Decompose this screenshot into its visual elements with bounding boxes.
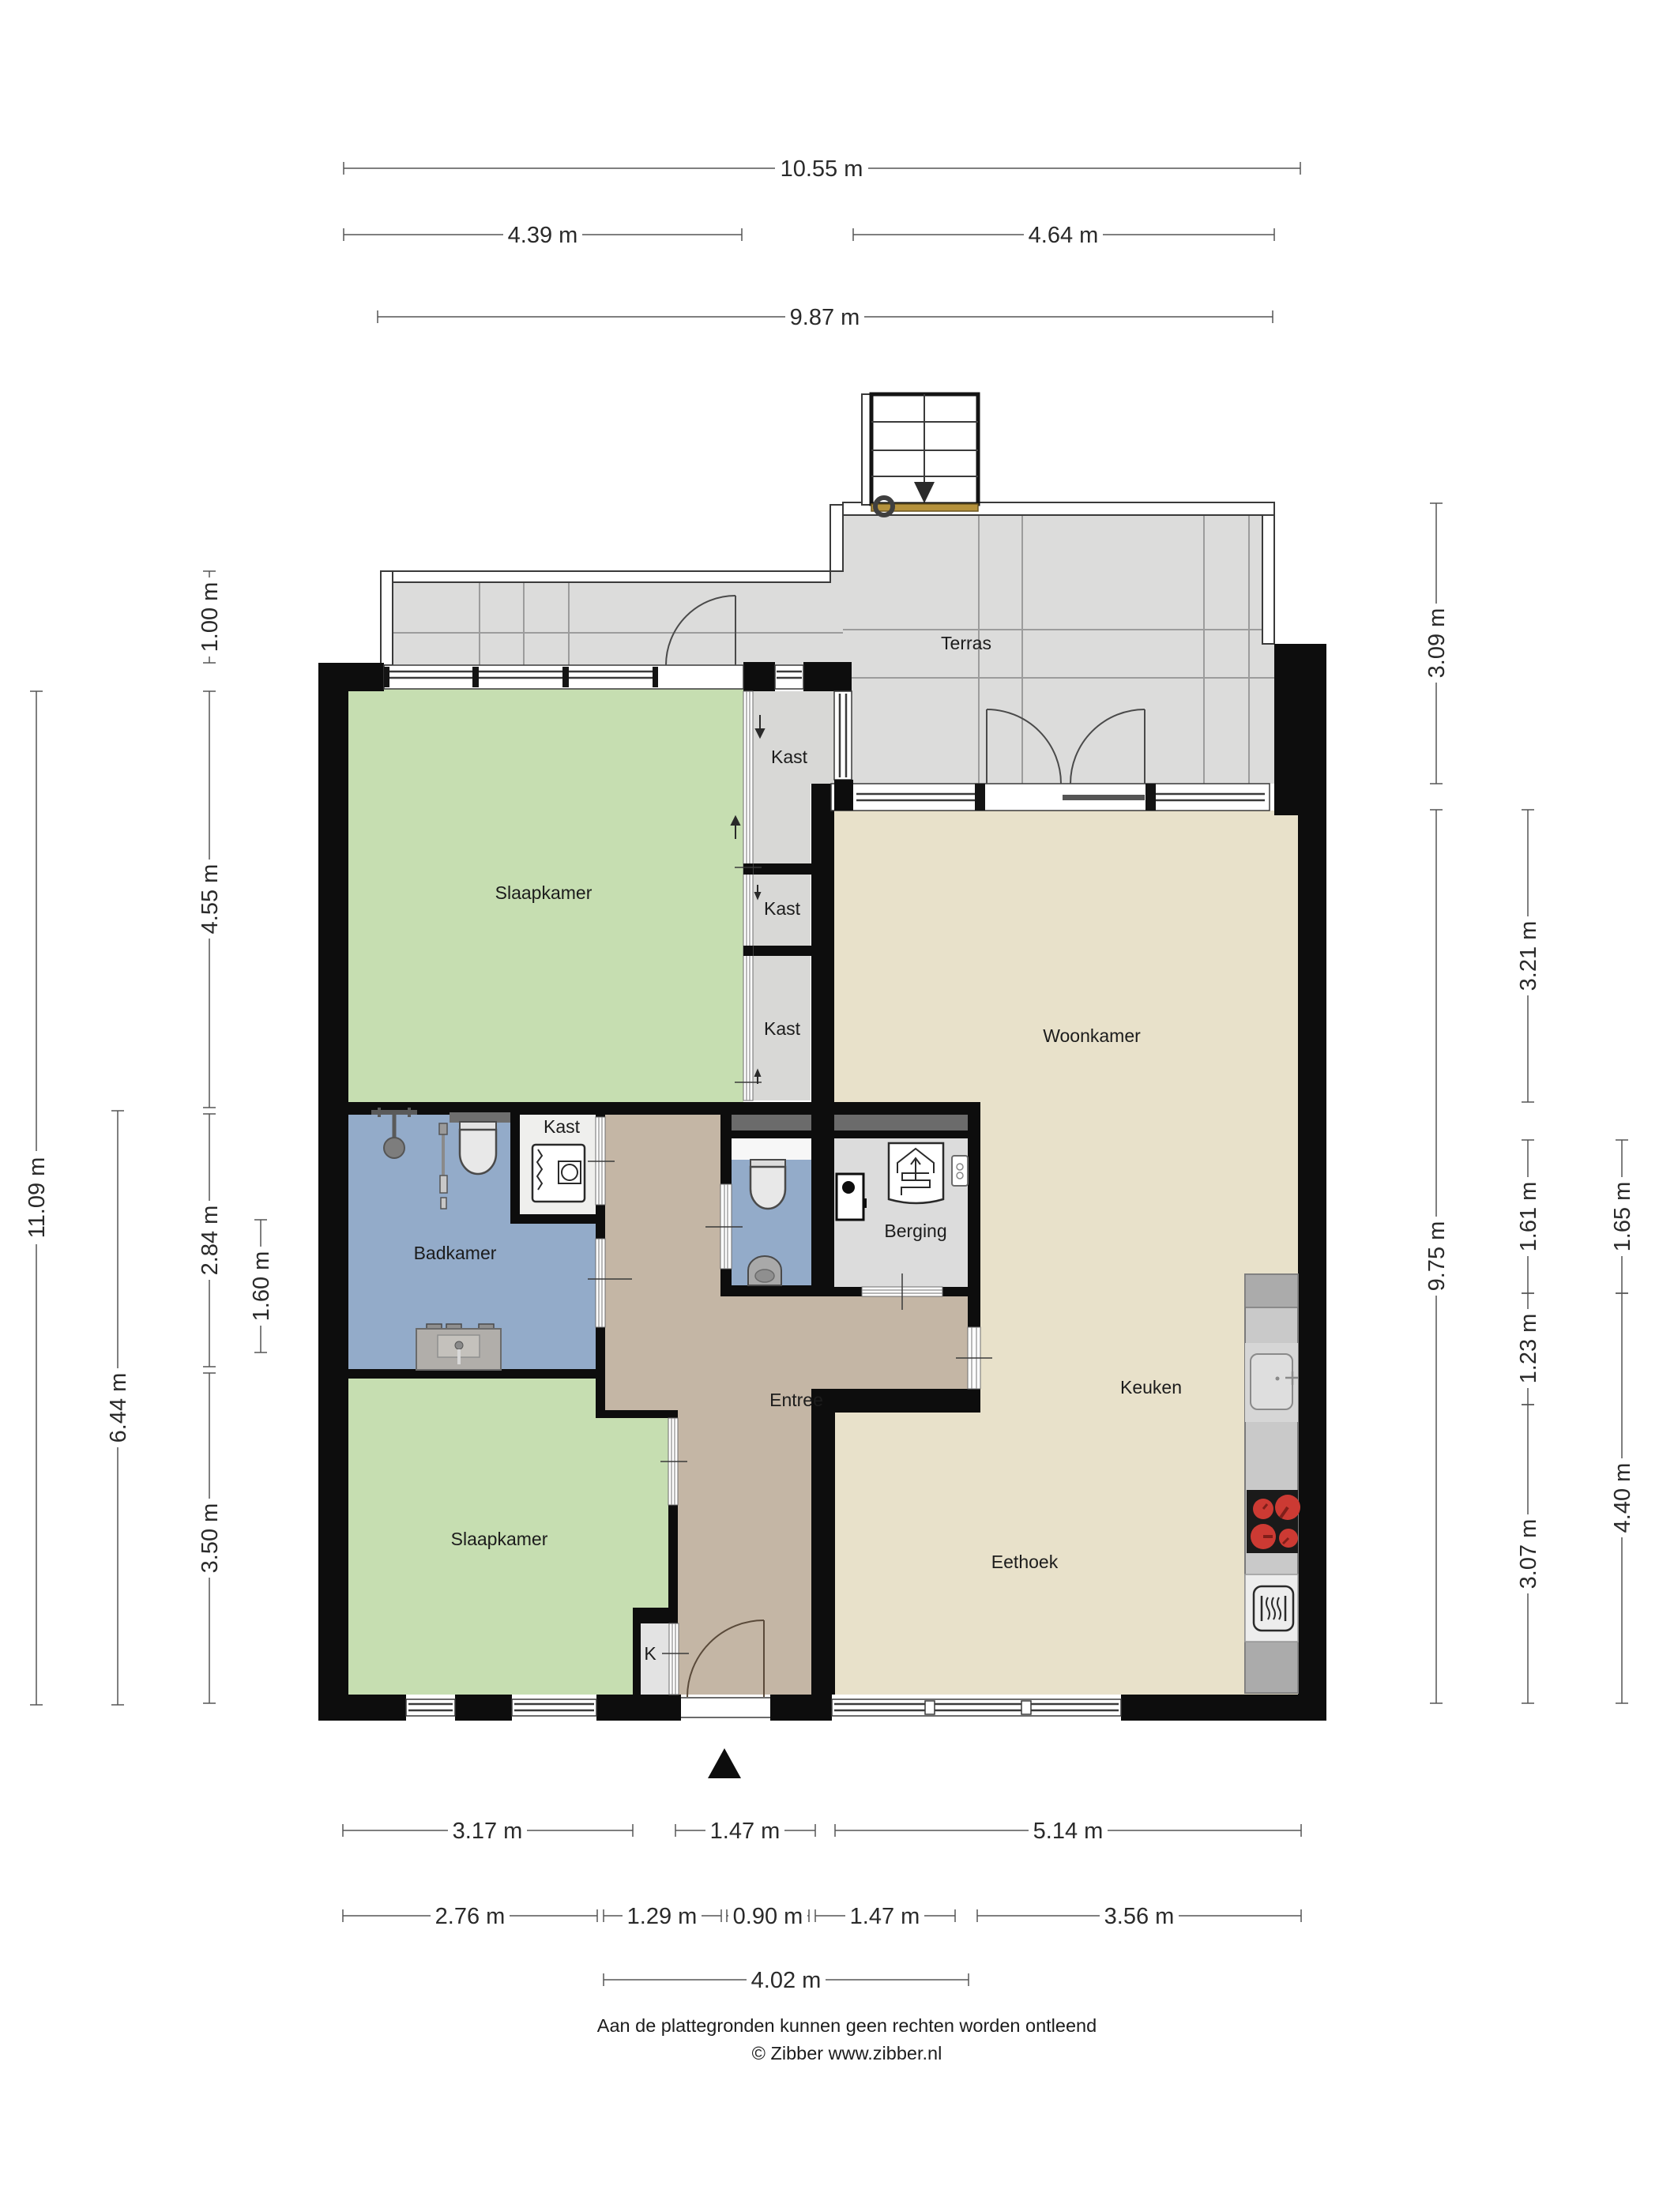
svg-text:5.14 m: 5.14 m bbox=[1033, 1819, 1104, 1844]
svg-text:9.75 m: 9.75 m bbox=[1424, 1221, 1450, 1292]
svg-text:Kast: Kast bbox=[771, 747, 808, 767]
svg-text:3.56 m: 3.56 m bbox=[1104, 1904, 1175, 1929]
svg-text:K: K bbox=[644, 1643, 656, 1664]
svg-text:1.60 m: 1.60 m bbox=[249, 1251, 274, 1322]
svg-text:4.64 m: 4.64 m bbox=[1029, 223, 1099, 248]
svg-text:0.90 m: 0.90 m bbox=[733, 1904, 803, 1929]
svg-text:3.50 m: 3.50 m bbox=[197, 1503, 223, 1574]
svg-text:Terras: Terras bbox=[941, 633, 991, 653]
svg-text:3.07 m: 3.07 m bbox=[1516, 1519, 1541, 1589]
svg-text:Aan de plattegronden kunnen ge: Aan de plattegronden kunnen geen rechten… bbox=[597, 2015, 1097, 2036]
svg-text:Woonkamer: Woonkamer bbox=[1043, 1025, 1141, 1046]
svg-text:1.47 m: 1.47 m bbox=[850, 1904, 920, 1929]
svg-text:Kast: Kast bbox=[764, 898, 801, 919]
svg-text:1.00 m: 1.00 m bbox=[197, 582, 223, 653]
svg-text:Kast: Kast bbox=[544, 1116, 581, 1137]
svg-text:Kast: Kast bbox=[764, 1018, 801, 1039]
svg-text:Slaapkamer: Slaapkamer bbox=[495, 882, 592, 903]
svg-text:3.21 m: 3.21 m bbox=[1516, 921, 1541, 991]
svg-text:Badkamer: Badkamer bbox=[414, 1243, 497, 1263]
svg-text:Slaapkamer: Slaapkamer bbox=[451, 1529, 548, 1549]
svg-text:4.40 m: 4.40 m bbox=[1610, 1463, 1635, 1533]
svg-text:1.65 m: 1.65 m bbox=[1610, 1182, 1635, 1252]
svg-text:1.61 m: 1.61 m bbox=[1516, 1182, 1541, 1252]
svg-text:4.39 m: 4.39 m bbox=[508, 223, 578, 248]
svg-text:Berging: Berging bbox=[884, 1221, 946, 1241]
svg-text:1.29 m: 1.29 m bbox=[627, 1904, 698, 1929]
svg-text:4.02 m: 4.02 m bbox=[751, 1968, 822, 1993]
svg-text:4.55 m: 4.55 m bbox=[197, 864, 223, 935]
svg-text:9.87 m: 9.87 m bbox=[790, 305, 860, 330]
svg-text:2.84 m: 2.84 m bbox=[197, 1206, 223, 1276]
svg-text:11.09 m: 11.09 m bbox=[24, 1157, 50, 1239]
svg-text:6.44 m: 6.44 m bbox=[106, 1373, 131, 1443]
svg-text:1.23 m: 1.23 m bbox=[1516, 1314, 1541, 1384]
svg-text:3.09 m: 3.09 m bbox=[1424, 608, 1450, 679]
svg-text:10.55 m: 10.55 m bbox=[781, 156, 863, 182]
svg-text:Keuken: Keuken bbox=[1120, 1377, 1182, 1398]
svg-text:Eethoek: Eethoek bbox=[991, 1552, 1059, 1572]
svg-text:3.17 m: 3.17 m bbox=[453, 1819, 523, 1844]
svg-text:1.47 m: 1.47 m bbox=[710, 1819, 781, 1844]
svg-text:2.76 m: 2.76 m bbox=[435, 1904, 506, 1929]
svg-text:Entree: Entree bbox=[769, 1390, 823, 1410]
svg-text:© Zibber www.zibber.nl: © Zibber www.zibber.nl bbox=[752, 2043, 942, 2063]
